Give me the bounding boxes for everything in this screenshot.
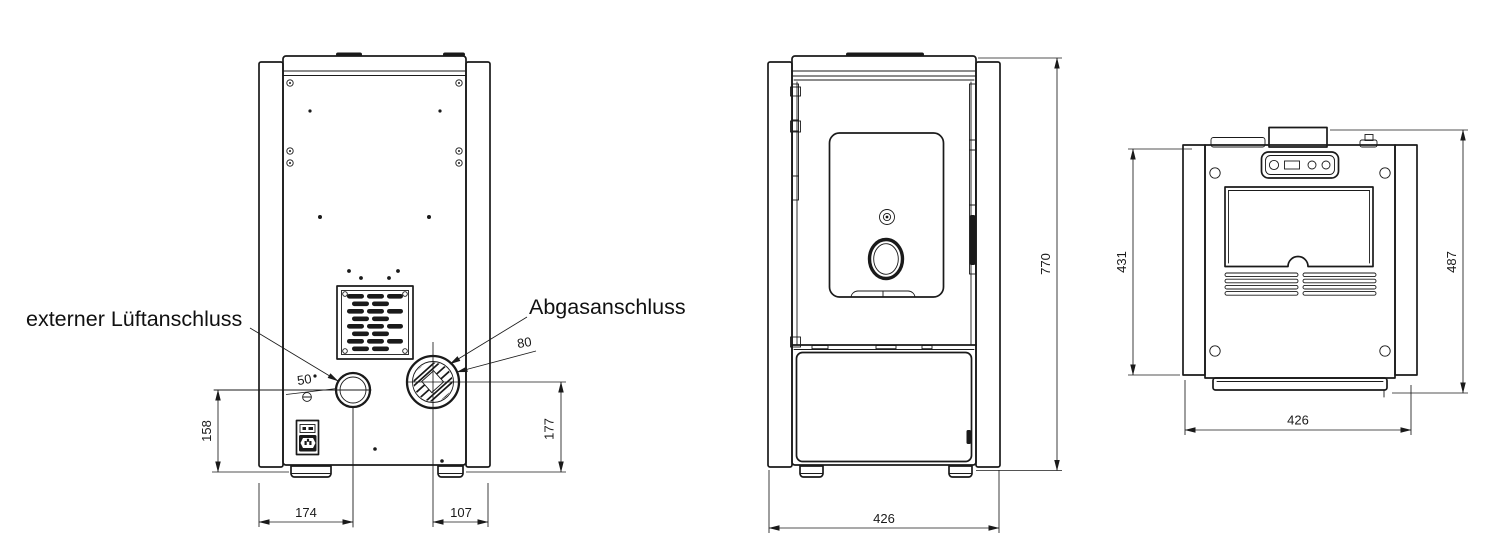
dim-exhaust-height-177: 177: [466, 382, 566, 472]
panel-button: [1269, 160, 1278, 169]
panel-display: [1285, 161, 1300, 169]
dim-text-158: 158: [199, 420, 214, 442]
dim-air-height-158: 158: [199, 390, 289, 472]
door-glass-frame: [830, 133, 944, 297]
front-top-tab: [846, 53, 924, 57]
top-view: 431 487 426: [1114, 128, 1468, 436]
top-left-side-panel: [1183, 145, 1205, 375]
rear-top-tab: [336, 53, 362, 57]
front-view: 770 426: [768, 53, 1062, 534]
dim-text-50: 50: [296, 371, 313, 388]
dim-text-487: 487: [1444, 251, 1459, 273]
rear-top-tab: [443, 53, 465, 57]
dim-top-width-426: 426: [1185, 380, 1411, 435]
dim-text-174: 174: [295, 505, 317, 520]
top-vent-slats: [1225, 273, 1376, 295]
pellet-drawer: [797, 353, 972, 462]
stove-door: [791, 80, 976, 345]
control-panel: [1262, 152, 1339, 178]
dim-text-431: 431: [1114, 251, 1129, 273]
front-left-side-panel: [768, 62, 792, 467]
hopper-lid-opening: [1225, 187, 1373, 267]
door-peephole: [880, 210, 895, 225]
front-feet: [800, 466, 972, 477]
door-window-oval: [870, 240, 903, 279]
front-right-side-panel: [976, 62, 1000, 467]
dim-text-426-top: 426: [1287, 413, 1309, 428]
rear-view: externer Lüftanschluss Abgasanschluss 50…: [26, 53, 686, 528]
rear-left-side-panel: [259, 62, 283, 467]
rear-body-panel: [283, 56, 466, 465]
dim-text-80: 80: [516, 334, 533, 351]
dim-front-width-426: 426: [769, 470, 999, 533]
dim-text-770: 770: [1038, 253, 1053, 275]
panel-button: [1308, 161, 1316, 169]
drawing-canvas: externer Lüftanschluss Abgasanschluss 50…: [0, 0, 1500, 560]
label-air-connection: externer Lüftanschluss: [26, 307, 242, 331]
rear-right-side-panel: [466, 62, 490, 467]
dim-text-107: 107: [450, 505, 472, 520]
dim-body-depth-431: 431: [1114, 149, 1192, 375]
door-handle-slot: [851, 291, 915, 297]
rear-screws: [287, 80, 462, 463]
front-divider: [791, 337, 977, 350]
top-right-side-panel: [1395, 145, 1417, 375]
rear-feet: [291, 466, 463, 477]
dim-air-diameter: 50: [286, 371, 337, 394]
top-front-strip: [1213, 378, 1387, 397]
grille-slats: [347, 294, 403, 351]
door-latch-right: [970, 84, 976, 274]
dim-overall-height-770: 770: [976, 58, 1062, 471]
leader-exhaust-connection: [450, 317, 527, 364]
dim-text-177: 177: [542, 418, 557, 440]
dim-exhaust-diameter: 80: [457, 334, 536, 372]
top-corner-holes: [1210, 168, 1390, 356]
dim-overall-depth-487: 487: [1330, 130, 1468, 393]
dim-exhaust-offset-107: 107: [433, 483, 488, 527]
power-inlet: [297, 421, 319, 455]
rear-vent-grille: [337, 286, 413, 359]
flue-outlet: [1269, 128, 1327, 148]
leader-air-connection: [250, 328, 338, 381]
label-exhaust-connection: Abgasanschluss: [529, 295, 686, 319]
panel-button: [1322, 161, 1330, 169]
dim-text-426-front: 426: [873, 511, 895, 526]
top-body: [1205, 145, 1395, 378]
air-connection: [214, 373, 371, 527]
dim-air-offset-174: 174: [259, 483, 353, 527]
front-body: [792, 56, 976, 465]
stove-technical-drawing: externer Lüftanschluss Abgasanschluss 50…: [0, 0, 1500, 560]
